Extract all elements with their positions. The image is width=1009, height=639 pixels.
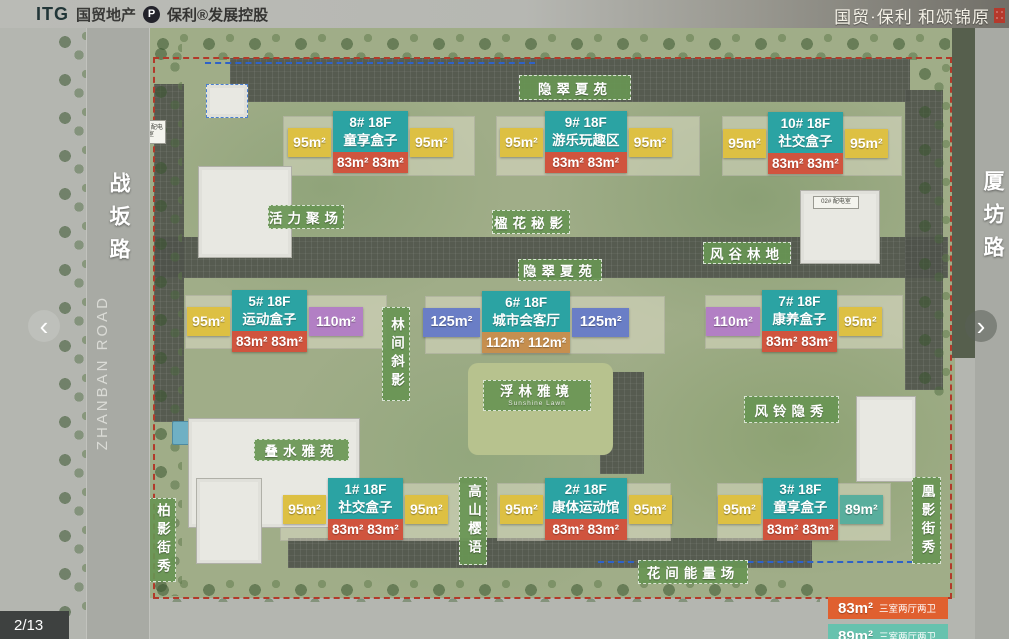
developer-logos: ITG 国贸地产 P 保利®发展控股	[36, 4, 268, 25]
legend-item-83: 83m² 三室两厅两卫	[828, 597, 948, 619]
itg-logo-text: 国贸地产	[76, 4, 136, 25]
building-header: 5# 18F 运动盒子	[232, 290, 307, 331]
zone-label: 楹花秘影	[492, 210, 570, 234]
zone-label: 叠水雅苑	[254, 439, 349, 461]
building-name: 游乐玩趣区	[552, 132, 620, 150]
tree-row-top	[150, 30, 950, 60]
legend-area: 89m²	[838, 628, 873, 639]
road-name-left: 战坂路	[103, 172, 133, 271]
legend-desc: 三室两厅两卫	[879, 629, 936, 639]
unit-area-left: 95m²	[187, 307, 230, 336]
building-header: 7# 18F 康养盒子	[762, 290, 837, 331]
building-header: 9# 18F 游乐玩趣区	[545, 111, 627, 152]
building-cluster-9: 95m² 9# 18F 游乐玩趣区 83m² 83m² 95m²	[500, 111, 672, 173]
building-cluster-3: 95m² 3# 18F 童享盒子 83m² 83m² 89m²	[718, 478, 883, 540]
blue-dashed-line	[205, 62, 535, 64]
unit-area-right: 95m²	[629, 128, 672, 157]
zone-label: 风谷林地	[703, 242, 791, 264]
zone-text: 隐翠夏苑	[538, 78, 612, 98]
zone-label: 浮林雅境 Sunshine Lawn	[483, 380, 591, 411]
prev-arrow-button[interactable]: ‹	[28, 310, 60, 342]
zone-label: 凰影街秀	[912, 477, 941, 564]
unit-area-left: 95m²	[283, 495, 326, 524]
next-arrow-button[interactable]: ›	[965, 310, 997, 342]
building-name: 康体运动馆	[552, 499, 620, 517]
amenity-building	[856, 396, 916, 482]
unit-areas-center: 83m² 83m²	[763, 519, 838, 540]
legend-area: 83m²	[838, 600, 873, 617]
building-name: 社交盒子	[775, 133, 836, 151]
zone-text: 凰影街秀	[917, 484, 937, 558]
building-cluster-7: 110m² 7# 18F 康养盒子 83m² 83m² 95m²	[706, 290, 882, 352]
project-brand-title: 国贸·保利 和颂锦原	[834, 3, 990, 28]
site-plan-viewer: 隐翠夏苑 活力聚场 楹花秘影 隐翠夏苑 风谷林地 林间斜影 浮林雅境 Sunsh…	[0, 0, 1009, 639]
zone-text: 叠水雅苑	[265, 440, 339, 460]
building-name: 童享盒子	[770, 499, 831, 517]
building-cluster-2: 95m² 2# 18F 康体运动馆 83m² 83m² 95m²	[500, 478, 672, 540]
poly-logo-icon: P	[143, 6, 160, 23]
building-header: 8# 18F 童享盒子	[333, 111, 408, 152]
building-header: 6# 18F 城市会客厅	[482, 291, 570, 332]
zone-label: 风铃隐秀	[744, 396, 839, 423]
zone-label: 柏影街秀	[148, 498, 176, 582]
building-cluster-1: 95m² 1# 18F 社交盒子 83m² 83m² 95m²	[283, 478, 448, 540]
road-name-right: 厦坊路	[977, 170, 1007, 269]
unit-area-left: 110m²	[706, 307, 760, 336]
unit-areas-center: 112m² 112m²	[482, 332, 570, 353]
building-header: 1# 18F 社交盒子	[328, 478, 403, 519]
unit-areas-center: 83m² 83m²	[545, 519, 627, 540]
unit-area-left: 95m²	[500, 128, 543, 157]
zone-text: 活力聚场	[269, 207, 343, 227]
building-name: 运动盒子	[239, 311, 300, 329]
unit-areas-center: 83m² 83m²	[545, 152, 627, 173]
unit-areas-center: 83m² 83m²	[232, 331, 307, 352]
zone-label: 花间能量场	[638, 560, 748, 584]
amenity-building	[206, 84, 248, 118]
itg-logo: ITG	[36, 4, 69, 25]
unit-area-right: 95m²	[839, 307, 882, 336]
building-name: 康养盒子	[769, 311, 830, 329]
unit-area-left: 95m²	[500, 495, 543, 524]
poly-logo-text: 保利®发展控股	[167, 4, 268, 25]
building-id: 6# 18F	[489, 294, 563, 312]
unit-area-right: 95m²	[410, 128, 453, 157]
building-name: 社交盒子	[335, 499, 396, 517]
unit-areas-center: 83m² 83m²	[333, 152, 408, 173]
zone-text: 隐翠夏苑	[523, 260, 597, 280]
building-id: 7# 18F	[769, 293, 830, 311]
zone-text: 楹花秘影	[494, 212, 568, 232]
building-cluster-8: 95m² 8# 18F 童享盒子 83m² 83m² 95m²	[288, 111, 453, 173]
building-id: 8# 18F	[340, 114, 401, 132]
unit-area-left: 95m²	[723, 129, 766, 158]
substation-label: 02# 配电室	[813, 196, 859, 209]
red-seal-icon	[994, 8, 1005, 23]
tree-row-right	[912, 60, 952, 400]
building-id: 10# 18F	[775, 115, 836, 133]
zone-text: 风谷林地	[710, 243, 784, 263]
zone-text: 柏影街秀	[152, 503, 172, 577]
zone-text: 高山樱语	[463, 484, 483, 558]
project-brand: 国贸·保利 和颂锦原	[834, 3, 1005, 28]
building-cluster-5: 95m² 5# 18F 运动盒子 83m² 83m² 110m²	[187, 290, 363, 352]
unit-area-left: 95m²	[718, 495, 761, 524]
unit-area-left: 125m²	[423, 308, 480, 337]
building-name: 童享盒子	[340, 132, 401, 150]
zone-label: 隐翠夏苑	[519, 75, 631, 100]
road-name-left-en: ZHANBAN ROAD	[94, 295, 111, 450]
zone-text: 浮林雅境	[500, 384, 574, 400]
legend-desc: 三室两厅两卫	[879, 601, 936, 615]
building-header: 2# 18F 康体运动馆	[545, 478, 627, 519]
unit-areas-center: 83m² 83m²	[762, 331, 837, 352]
building-cluster-10: 95m² 10# 18F 社交盒子 83m² 83m² 95m²	[723, 112, 888, 174]
zone-text: 风铃隐秀	[755, 400, 829, 420]
zone-label: 林间斜影	[382, 307, 410, 401]
unit-areas-center: 83m² 83m²	[768, 153, 843, 174]
unit-area-right: 95m²	[405, 495, 448, 524]
unit-area-right: 89m²	[840, 495, 883, 524]
unit-area-right: 125m²	[572, 308, 629, 337]
unit-areas-center: 83m² 83m²	[328, 519, 403, 540]
zone-label: 隐翠夏苑	[518, 259, 602, 281]
building-cluster-6: 125m² 6# 18F 城市会客厅 112m² 112m² 125m²	[423, 291, 629, 353]
building-header: 10# 18F 社交盒子	[768, 112, 843, 153]
zone-label: 高山樱语	[459, 477, 487, 565]
building-id: 3# 18F	[770, 481, 831, 499]
building-name: 城市会客厅	[489, 312, 563, 330]
unit-area-right: 95m²	[629, 495, 672, 524]
building-id: 2# 18F	[552, 481, 620, 499]
legend-item-89: 89m² 三室两厅两卫	[828, 624, 948, 639]
building-id: 1# 18F	[335, 481, 396, 499]
amenity-building	[196, 478, 262, 564]
page-indicator: 2/13	[0, 611, 69, 639]
building-id: 9# 18F	[552, 114, 620, 132]
zone-text: 林间斜影	[386, 317, 406, 391]
zone-subtext: Sunshine Lawn	[508, 400, 565, 408]
zone-text: 花间能量场	[647, 562, 740, 582]
unit-area-right: 95m²	[845, 129, 888, 158]
building-header: 3# 18F 童享盒子	[763, 478, 838, 519]
unit-area-right: 110m²	[309, 307, 363, 336]
header-bar: ITG 国贸地产 P 保利®发展控股 国贸·保利 和颂锦原	[0, 0, 1009, 28]
unit-area-left: 95m²	[288, 128, 331, 157]
zone-label: 活力聚场	[268, 205, 344, 229]
building-id: 5# 18F	[239, 293, 300, 311]
